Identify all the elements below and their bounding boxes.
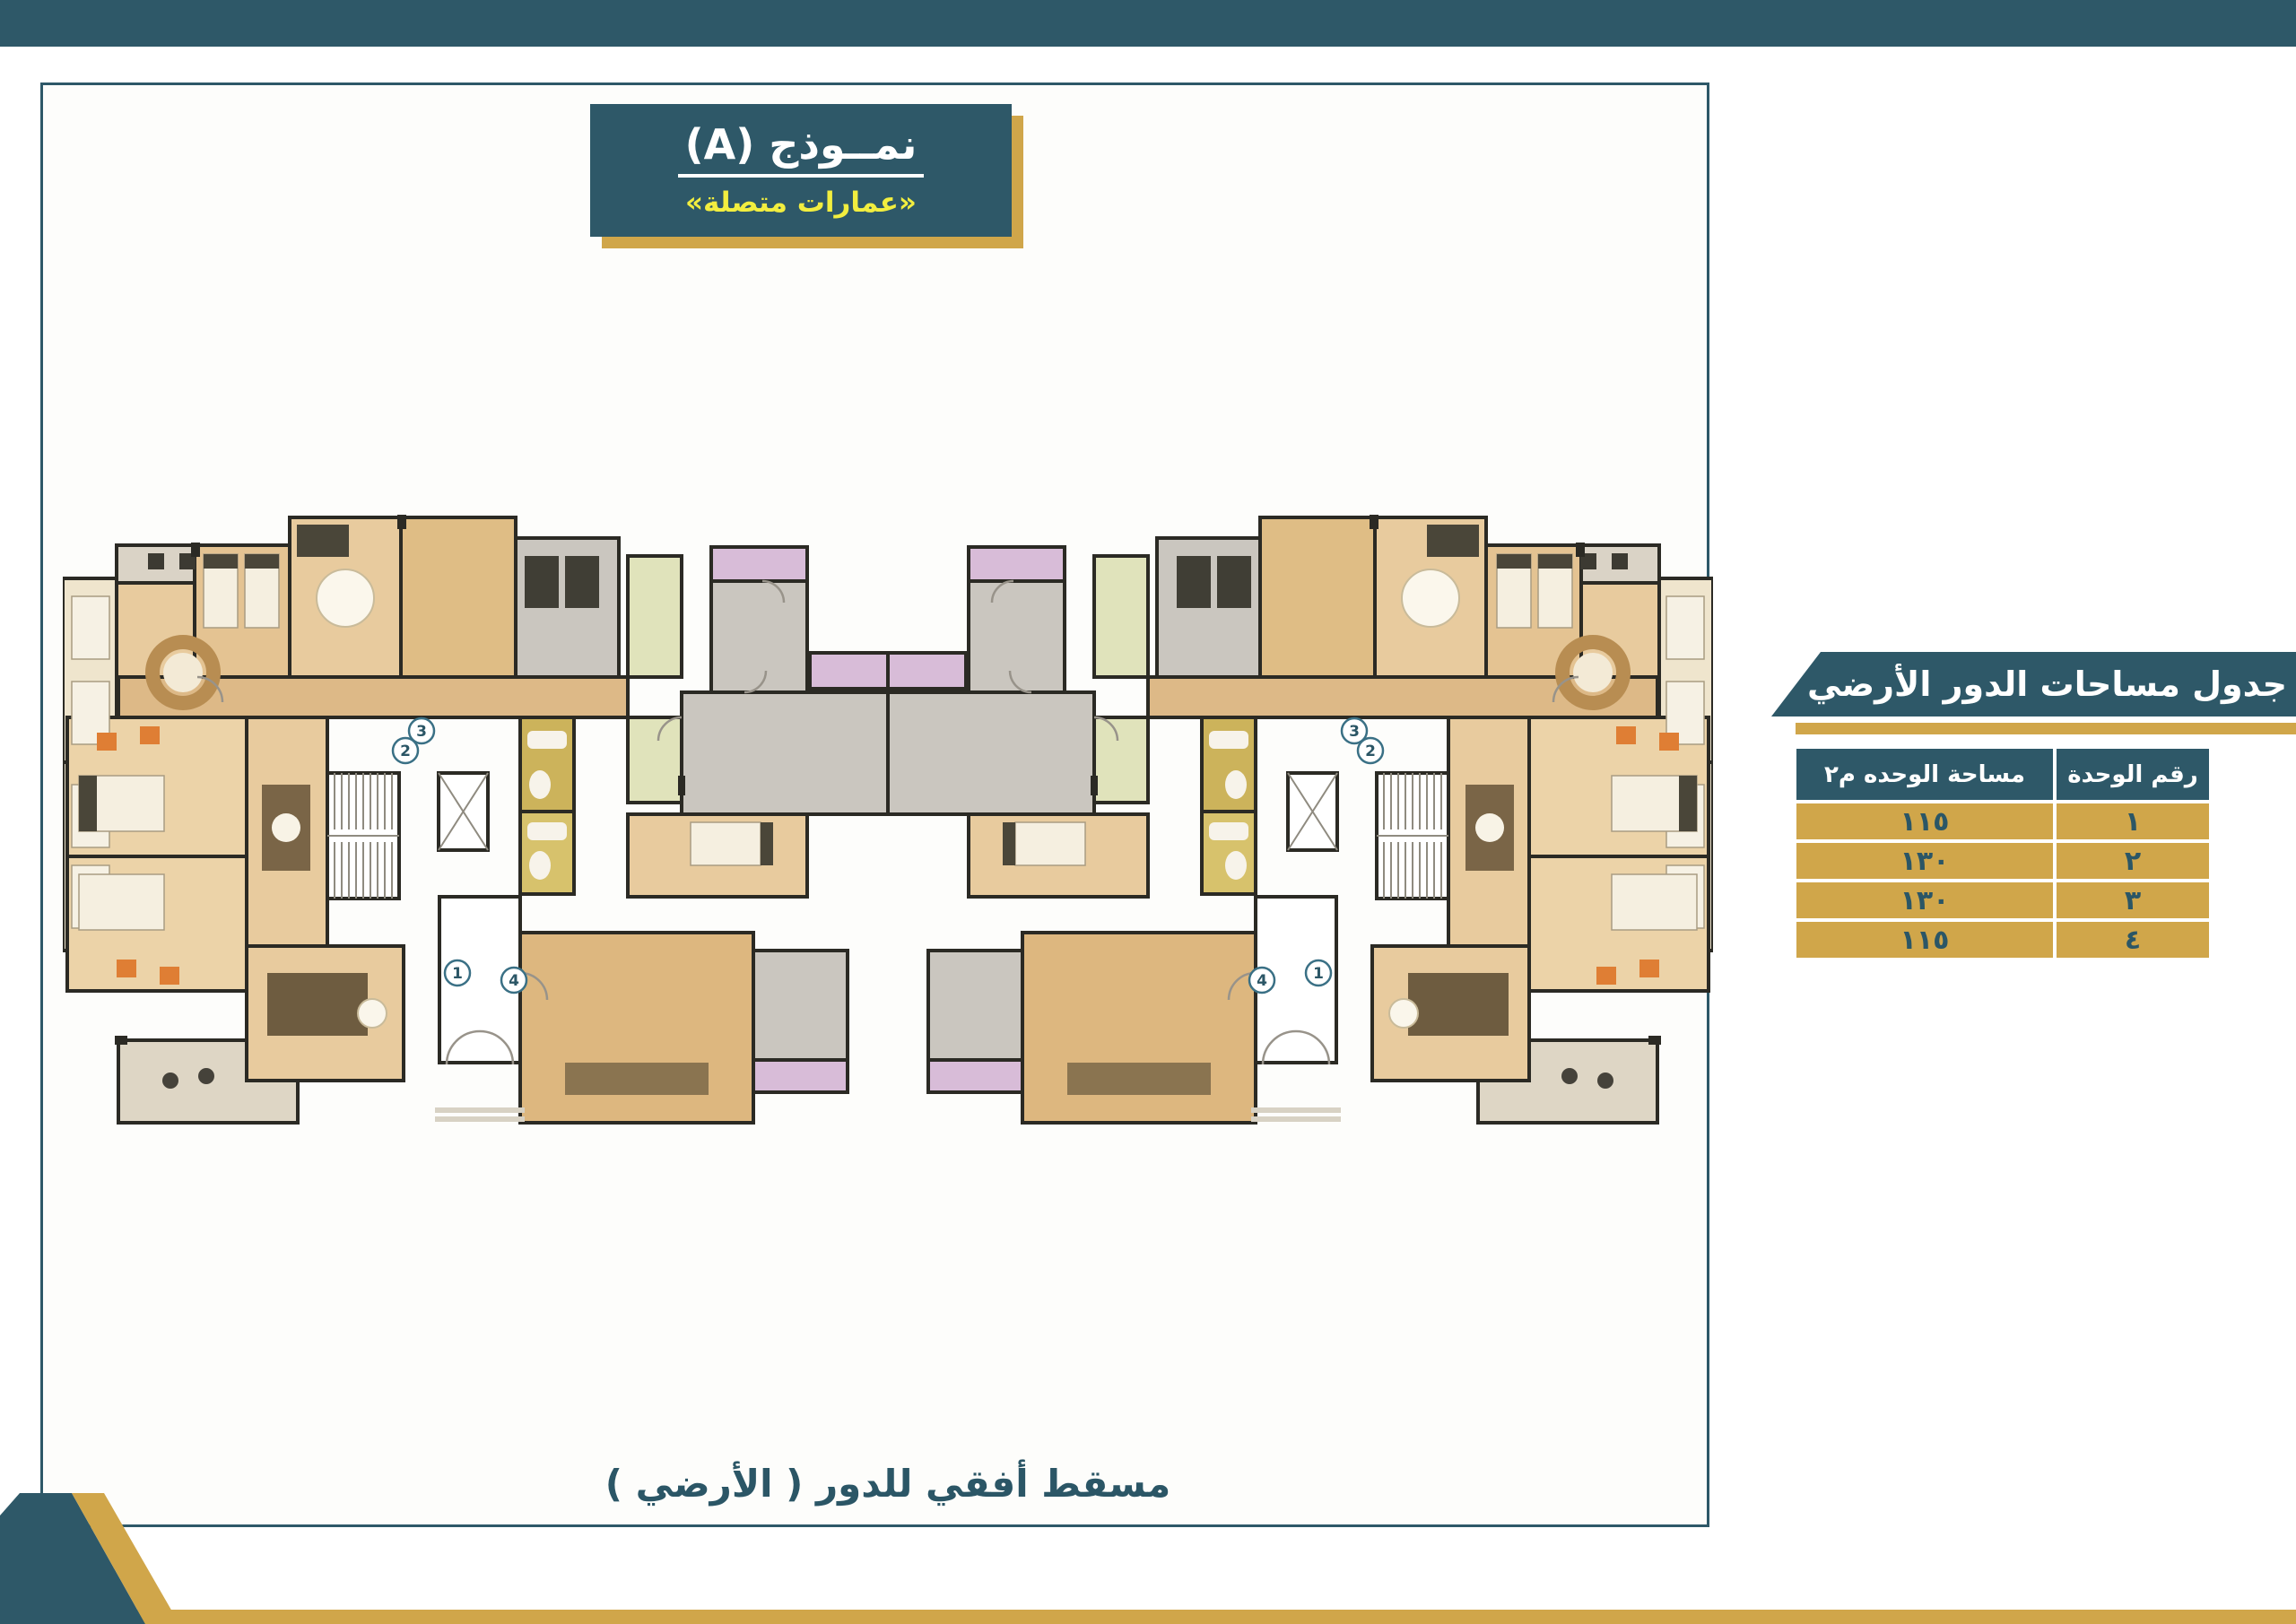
unit-marker-2-right: 2 (1365, 743, 1376, 760)
table-cell-unit-area: ١١٥ (1796, 803, 2053, 839)
areas-panel-title-text: جدول مساحات الدور الأرضي (1780, 664, 2287, 704)
unit-marker-3-right: 3 (1349, 723, 1360, 741)
col-header-unit-no: رقم الوحدة (2057, 749, 2209, 800)
model-subtitle: «عمارات متصلة» (685, 187, 917, 219)
table-cell-unit-no: ٢ (2057, 843, 2209, 879)
model-title: نمــوذج (A) (678, 122, 925, 178)
table-cell-unit-area: ١٣٠ (1796, 882, 2053, 918)
bottom-decoration (0, 1475, 2296, 1624)
unit-marker-1-right: 1 (1313, 965, 1324, 983)
building-left (63, 515, 888, 1123)
model-badge: نمــوذج (A) «عمارات متصلة» (590, 104, 1012, 237)
floor-plan: 3 2 1 4 3 2 1 4 (63, 489, 1713, 1143)
unit-marker-4-left: 4 (509, 972, 519, 990)
areas-panel-underline (1796, 723, 2296, 734)
col-header-unit-area: مساحة الوحده م٢ (1796, 749, 2053, 800)
table-cell-unit-no: ١ (2057, 803, 2209, 839)
table-cell-unit-area: ١١٥ (1796, 922, 2053, 958)
top-bar (0, 0, 2296, 47)
areas-panel-title: جدول مساحات الدور الأرضي (1771, 652, 2296, 716)
table-cell-unit-area: ١٣٠ (1796, 843, 2053, 879)
unit-marker-2-left: 2 (400, 743, 411, 760)
unit-marker-1-left: 1 (452, 965, 463, 983)
bottom-gold-bar (94, 1610, 2296, 1624)
building-right (888, 515, 1713, 1123)
areas-table: رقم الوحدة مساحة الوحده م٢ ١ ١١٥ ٢ ١٣٠ ٣… (1796, 749, 2209, 958)
table-cell-unit-no: ٣ (2057, 882, 2209, 918)
unit-marker-4-right: 4 (1257, 972, 1267, 990)
table-cell-unit-no: ٤ (2057, 922, 2209, 958)
unit-marker-3-left: 3 (416, 723, 427, 741)
